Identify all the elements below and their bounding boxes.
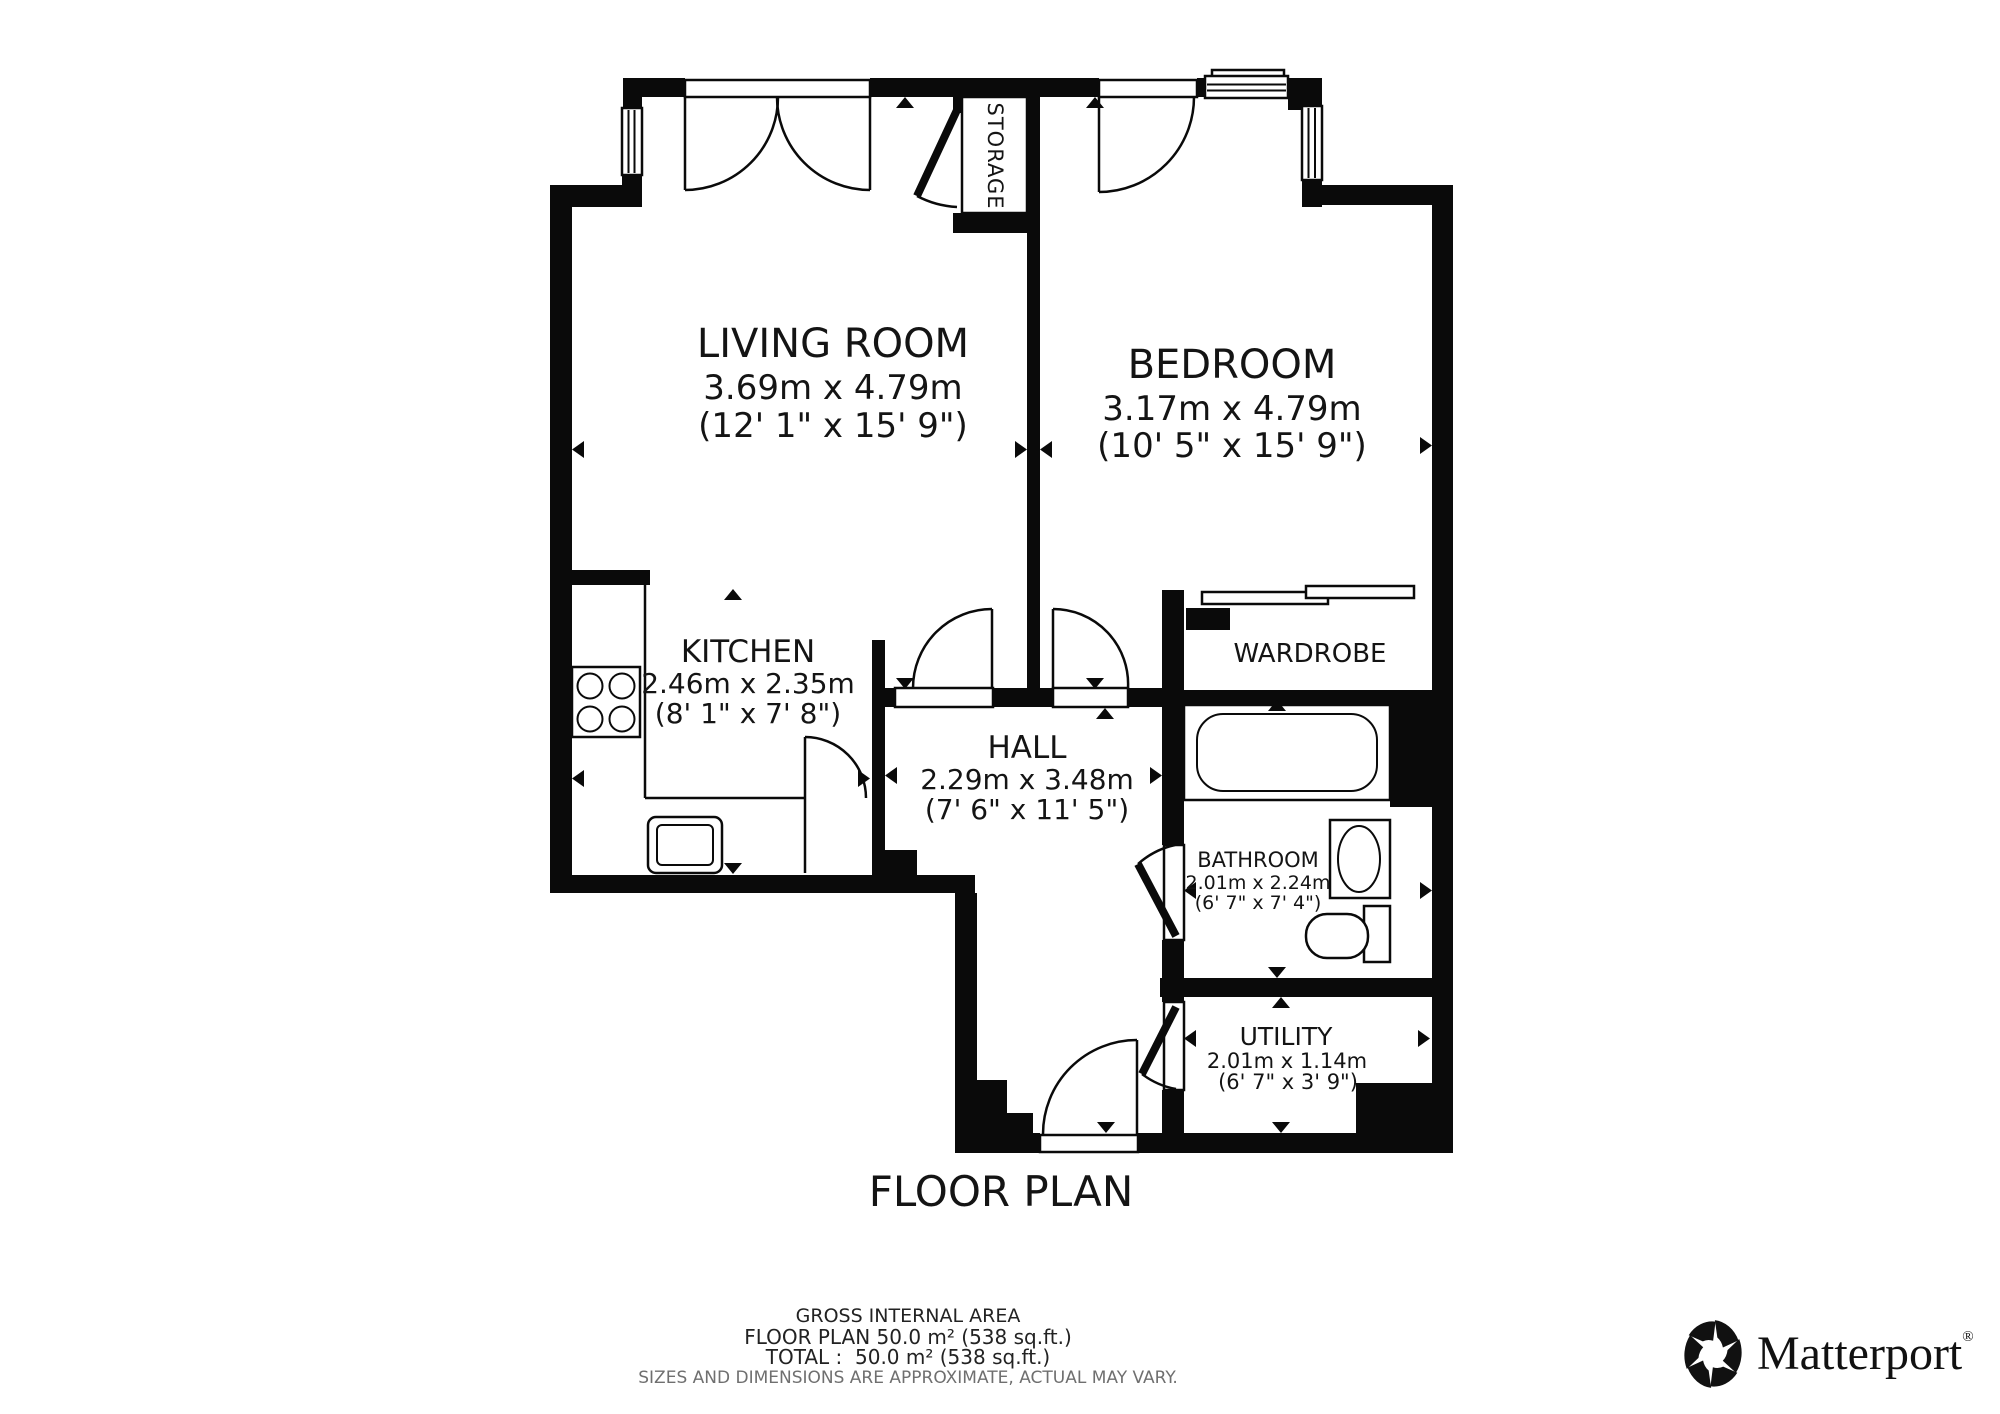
bedroom-door-opening xyxy=(1099,80,1197,97)
hall-bedroom-threshold xyxy=(1053,688,1128,707)
hall-bedroom-door-swing xyxy=(1053,609,1128,688)
arrow-right-icon xyxy=(1150,767,1162,784)
utility-label: UTILITY xyxy=(1240,1022,1334,1051)
wall-segment xyxy=(1390,707,1432,807)
disclaimer-text: SIZES AND DIMENSIONS ARE APPROXIMATE, AC… xyxy=(508,1368,1308,1389)
wall-segment-right-outer xyxy=(1432,185,1453,1153)
bathroom-label: BATHROOM xyxy=(1197,848,1319,872)
matterport-pinwheel-icon xyxy=(1682,1318,1744,1390)
wall-segment xyxy=(1186,608,1230,630)
arrow-down-icon xyxy=(1272,1122,1290,1133)
wall-segment-bottom xyxy=(1138,1133,1453,1153)
wardrobe-label: WARDROBE xyxy=(1234,639,1387,669)
floor-plan-drawing: LIVING ROOM 3.69m x 4.79m (12' 1" x 15' … xyxy=(0,0,2000,1414)
arrow-up-icon xyxy=(724,589,742,600)
arrow-right-icon xyxy=(1418,1030,1430,1047)
arrow-down-icon xyxy=(1268,967,1286,978)
living-room-metric: 3.69m x 4.79m xyxy=(703,368,962,408)
wall-segment-room-divider xyxy=(1027,78,1040,688)
storage-door-leaf xyxy=(917,110,957,196)
wall-segment xyxy=(1302,178,1322,207)
bathtub-icon xyxy=(1184,705,1390,800)
page-title: FLOOR PLAN xyxy=(869,1167,1134,1216)
french-door-swing xyxy=(777,97,870,190)
wall-segment xyxy=(955,893,977,1153)
toilet-icon xyxy=(1306,914,1368,958)
room-labels: LIVING ROOM 3.69m x 4.79m (12' 1" x 15' … xyxy=(641,103,1386,1216)
kitchen-door-swing xyxy=(805,737,866,798)
wall-segment-hall-right xyxy=(1162,1090,1184,1135)
front-door-swing xyxy=(1043,1040,1137,1134)
doors xyxy=(685,97,1194,1135)
arrow-up-icon xyxy=(1086,97,1104,108)
bedroom-label: BEDROOM xyxy=(1128,342,1337,388)
arrow-left-icon xyxy=(885,767,897,784)
hall-imperial: (7' 6" x 11' 5") xyxy=(925,793,1129,826)
storage-label: STORAGE xyxy=(983,103,1007,210)
wall-segment xyxy=(993,688,1053,707)
gross-internal-area-heading: GROSS INTERNAL AREA xyxy=(508,1306,1308,1327)
arrow-right-icon xyxy=(1420,882,1432,899)
bedroom-window-icon xyxy=(1205,76,1288,98)
wall-segment xyxy=(623,78,642,110)
bathroom-fixtures xyxy=(1184,705,1390,962)
arrow-right-icon xyxy=(1420,437,1432,454)
wall-segment xyxy=(1128,688,1162,707)
wall-segment xyxy=(873,850,917,877)
arrow-left-icon xyxy=(572,770,584,787)
entrance-step-block xyxy=(977,1080,1007,1135)
matterport-branding: Matterport® xyxy=(1682,1318,1974,1390)
matterport-wordmark: Matterport® xyxy=(1757,1330,1974,1378)
wall-segment-bathroom-bottom xyxy=(1160,978,1453,997)
arrow-down-icon xyxy=(724,863,742,874)
wall-segment xyxy=(870,78,1099,97)
hall-living-door-swing xyxy=(913,609,992,688)
wall-segment-left-outer xyxy=(550,185,572,893)
hall-label: HALL xyxy=(987,730,1067,766)
wordmark-text: Matterport xyxy=(1757,1327,1962,1380)
wall-segment-bottom xyxy=(955,1133,1040,1153)
wall-segment-kitchen-bottom xyxy=(550,875,975,893)
french-door-swing xyxy=(685,97,778,190)
storage-door-swing xyxy=(917,196,957,207)
living-room-window-icon xyxy=(622,108,642,175)
wardrobe-unit xyxy=(1186,586,1432,690)
kitchen-metric: 2.46m x 2.35m xyxy=(641,667,855,700)
sliding-door-panel xyxy=(1306,586,1414,598)
arrow-up-icon xyxy=(1272,997,1290,1008)
arrow-left-icon xyxy=(1184,1030,1196,1047)
front-door-threshold xyxy=(1040,1135,1138,1152)
bedroom-side-window-icon xyxy=(1302,106,1322,180)
floor-plan-page: LIVING ROOM 3.69m x 4.79m (12' 1" x 15' … xyxy=(0,0,2000,1414)
arrow-left-icon xyxy=(1040,441,1052,458)
entrance-step-block xyxy=(1007,1113,1033,1135)
wall-stub-kitchen xyxy=(550,570,650,585)
bedroom-door-swing xyxy=(1099,97,1194,192)
bedroom-imperial: (10' 5" x 15' 9") xyxy=(1097,426,1367,466)
kitchen-label: KITCHEN xyxy=(681,634,815,670)
wall-segment-hall-left xyxy=(872,640,885,877)
bedroom-metric: 3.17m x 4.79m xyxy=(1102,389,1361,429)
utility-imperial: (6' 7" x 3' 9") xyxy=(1218,1070,1358,1094)
registered-mark: ® xyxy=(1962,1329,1973,1345)
wall-segment-hall-right xyxy=(1162,590,1184,845)
floor-plan-area-line: FLOOR PLAN 50.0 m² (538 sq.ft.) xyxy=(508,1327,1308,1347)
wall-segment-storage-bottom xyxy=(953,213,1040,233)
kitchen-imperial: (8' 1" x 7' 8") xyxy=(655,697,841,730)
bathroom-metric: 2.01m x 2.24m xyxy=(1186,872,1331,894)
arrow-right-icon xyxy=(1015,441,1027,458)
living-room-imperial: (12' 1" x 15' 9") xyxy=(698,406,968,446)
arrow-down-icon xyxy=(1097,1122,1115,1133)
arrow-up-icon xyxy=(1096,708,1114,719)
arrow-left-icon xyxy=(572,441,584,458)
arrow-up-icon xyxy=(896,97,914,108)
balcony-door-opening xyxy=(685,80,870,97)
hall-living-threshold xyxy=(895,688,993,707)
hall-metric: 2.29m x 3.48m xyxy=(920,763,1134,796)
area-summary: GROSS INTERNAL AREA FLOOR PLAN 50.0 m² (… xyxy=(508,1306,1308,1389)
wall-segment xyxy=(872,688,895,707)
total-area-line: TOTAL : 50.0 m² (538 sq.ft.) xyxy=(508,1347,1308,1367)
wall-segment-utility-notch xyxy=(1356,1083,1432,1133)
living-room-label: LIVING ROOM xyxy=(697,321,969,367)
bathroom-imperial: (6' 7" x 7' 4") xyxy=(1195,892,1322,914)
